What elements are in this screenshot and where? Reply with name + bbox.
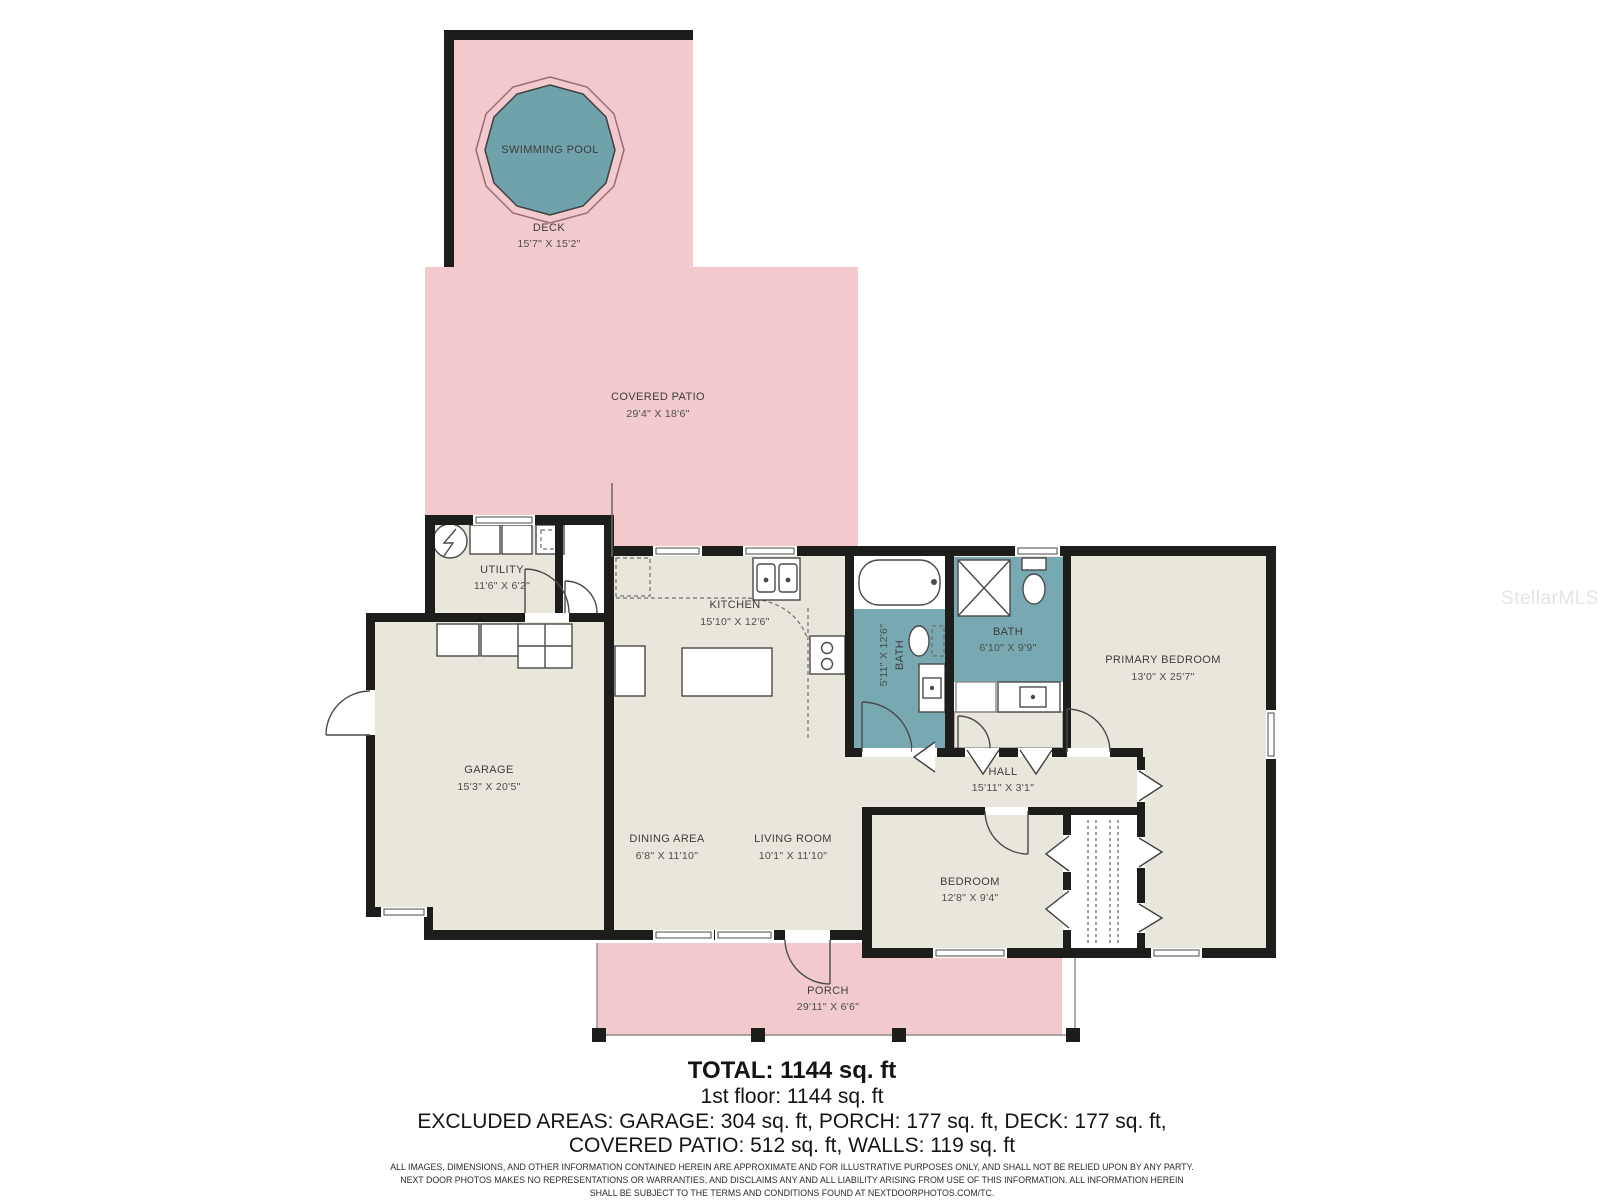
- kitchen-island-icon: [682, 648, 772, 696]
- room-dims-garage: 15'3" X 20'5": [457, 781, 520, 793]
- disclaimer-text: ALL IMAGES, DIMENSIONS, AND OTHER INFORM…: [390, 1162, 1193, 1198]
- window: [743, 546, 797, 556]
- room-label-utility: UTILITY: [480, 564, 524, 576]
- room-label-bath2: BATH: [993, 626, 1023, 638]
- window: [715, 930, 774, 940]
- room-label-pool: SWIMMING POOL: [501, 144, 598, 156]
- room-label-patio: COVERED PATIO: [611, 391, 705, 403]
- closet-floor: [1071, 815, 1137, 948]
- room-dims-living: 10'1" X 11'10": [759, 850, 828, 862]
- utility-fixtures: [433, 524, 564, 558]
- room-label-dining: DINING AREA: [629, 833, 705, 845]
- disclaimer-line-2: NEXT DOOR PHOTOS MAKES NO REPRESENTATION…: [400, 1175, 1184, 1185]
- room-label-garage: GARAGE: [464, 764, 513, 776]
- window: [381, 907, 427, 917]
- stove-icon: [810, 636, 845, 674]
- room-label-hall: HALL: [988, 766, 1017, 778]
- disclaimer-line-3: SHALL BE SUBJECT TO THE TERMS AND CONDIT…: [590, 1188, 995, 1198]
- room-dims-kitchen: 15'10" X 12'6": [700, 616, 769, 628]
- window: [1015, 546, 1060, 556]
- total-area-text: TOTAL: 1144 sq. ft: [688, 1057, 897, 1084]
- appliance-icon: [437, 624, 479, 656]
- window: [933, 948, 1007, 958]
- first-floor-area-text: 1st floor: 1144 sq. ft: [701, 1085, 884, 1108]
- water-heater-icon: [433, 524, 467, 558]
- window: [1266, 710, 1276, 759]
- floor-plan-canvas: SWIMMING POOL DECK 15'7" X 15'2" COVERED…: [0, 0, 1600, 1200]
- porch-post: [592, 1028, 606, 1042]
- stellar-mls-watermark: StellarMLS: [1501, 588, 1599, 609]
- disclaimer-line-1: ALL IMAGES, DIMENSIONS, AND OTHER INFORM…: [390, 1162, 1193, 1172]
- room-dims-deck: 15'7" X 15'2": [517, 238, 580, 250]
- window: [653, 930, 714, 940]
- appliance-icon: [481, 624, 521, 656]
- cabinet-icon: [615, 646, 645, 696]
- toilet-icon: [909, 626, 929, 656]
- window: [653, 546, 702, 556]
- window: [473, 515, 535, 525]
- toilet-icon: [1023, 574, 1045, 604]
- room-dims-bath1: 5'11" X 12'6": [878, 624, 890, 686]
- porch-post: [751, 1028, 765, 1042]
- excluded-areas-text-1: EXCLUDED AREAS: GARAGE: 304 sq. ft, PORC…: [417, 1110, 1166, 1133]
- room-label-bath1: BATH: [894, 640, 906, 670]
- excluded-areas-text-2: COVERED PATIO: 512 sq. ft, WALLS: 119 sq…: [569, 1134, 1015, 1157]
- room-label-bedroom: BEDROOM: [940, 876, 1000, 888]
- window: [1151, 948, 1202, 958]
- porch-post: [892, 1028, 906, 1042]
- room-dims-hall: 15'11" X 3'1": [972, 782, 1034, 794]
- room-dims-primary-bedroom: 13'0" X 25'7": [1131, 671, 1194, 683]
- room-dims-patio: 29'4" X 18'6": [626, 408, 689, 420]
- room-dims-bath2: 6'10" X 9'9": [979, 642, 1036, 654]
- summary-text: TOTAL: 1144 sq. ft 1st floor: 1144 sq. f…: [417, 1057, 1166, 1157]
- room-label-primary-bedroom: PRIMARY BEDROOM: [1105, 654, 1221, 666]
- dryer-icon: [502, 525, 532, 554]
- utility-closet: [563, 525, 604, 613]
- washer-icon: [470, 525, 500, 554]
- room-label-kitchen: KITCHEN: [709, 599, 760, 611]
- room-dims-utility: 11'6" X 6'2": [474, 580, 530, 592]
- door-swing: [326, 691, 370, 735]
- porch-post: [1066, 1028, 1080, 1042]
- toilet-tank-icon: [1022, 558, 1046, 570]
- room-label-deck: DECK: [533, 222, 565, 234]
- room-label-porch: PORCH: [807, 985, 849, 997]
- room-dims-bedroom: 12'8" X 9'4": [941, 892, 998, 904]
- room-label-living: LIVING ROOM: [754, 833, 832, 845]
- room-dims-dining: 6'8" X 11'10": [636, 850, 698, 862]
- room-dims-porch: 29'11" X 6'6": [797, 1001, 859, 1013]
- floor-plan-page: SWIMMING POOL DECK 15'7" X 15'2" COVERED…: [0, 0, 1600, 1200]
